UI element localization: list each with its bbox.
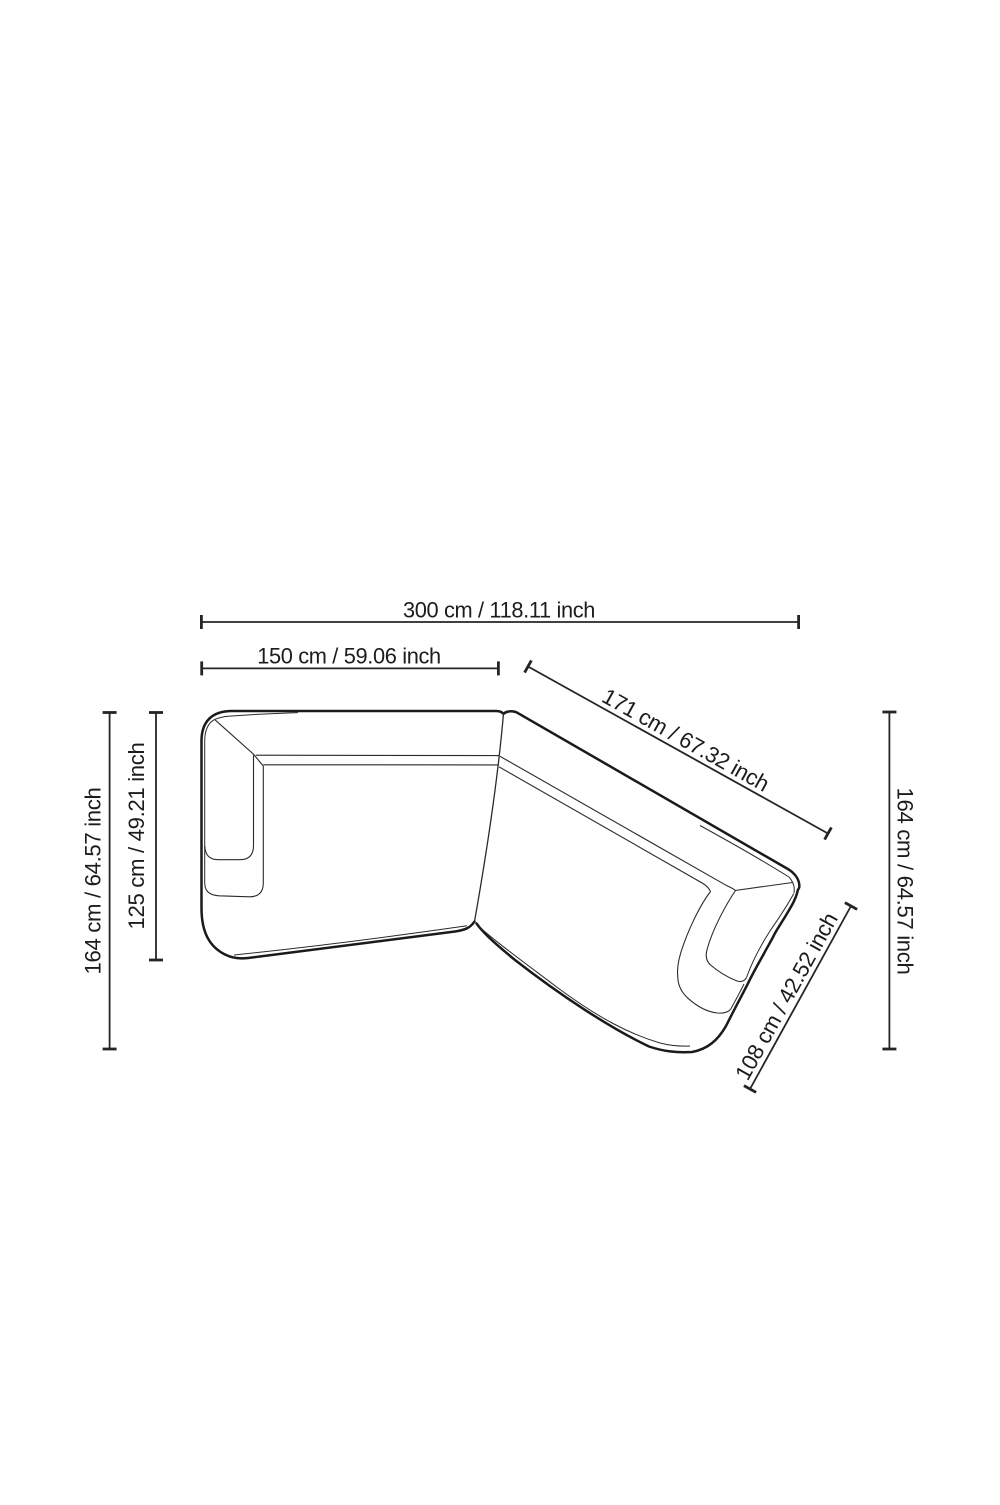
svg-text:164 cm / 64.57 inch: 164 cm / 64.57 inch: [893, 788, 918, 975]
svg-text:164 cm / 64.57 inch: 164 cm / 64.57 inch: [81, 788, 106, 975]
svg-text:300 cm / 118.11 inch: 300 cm / 118.11 inch: [403, 598, 595, 623]
svg-text:125 cm / 49.21 inch: 125 cm / 49.21 inch: [124, 743, 149, 930]
svg-text:150 cm / 59.06 inch: 150 cm / 59.06 inch: [257, 644, 441, 669]
